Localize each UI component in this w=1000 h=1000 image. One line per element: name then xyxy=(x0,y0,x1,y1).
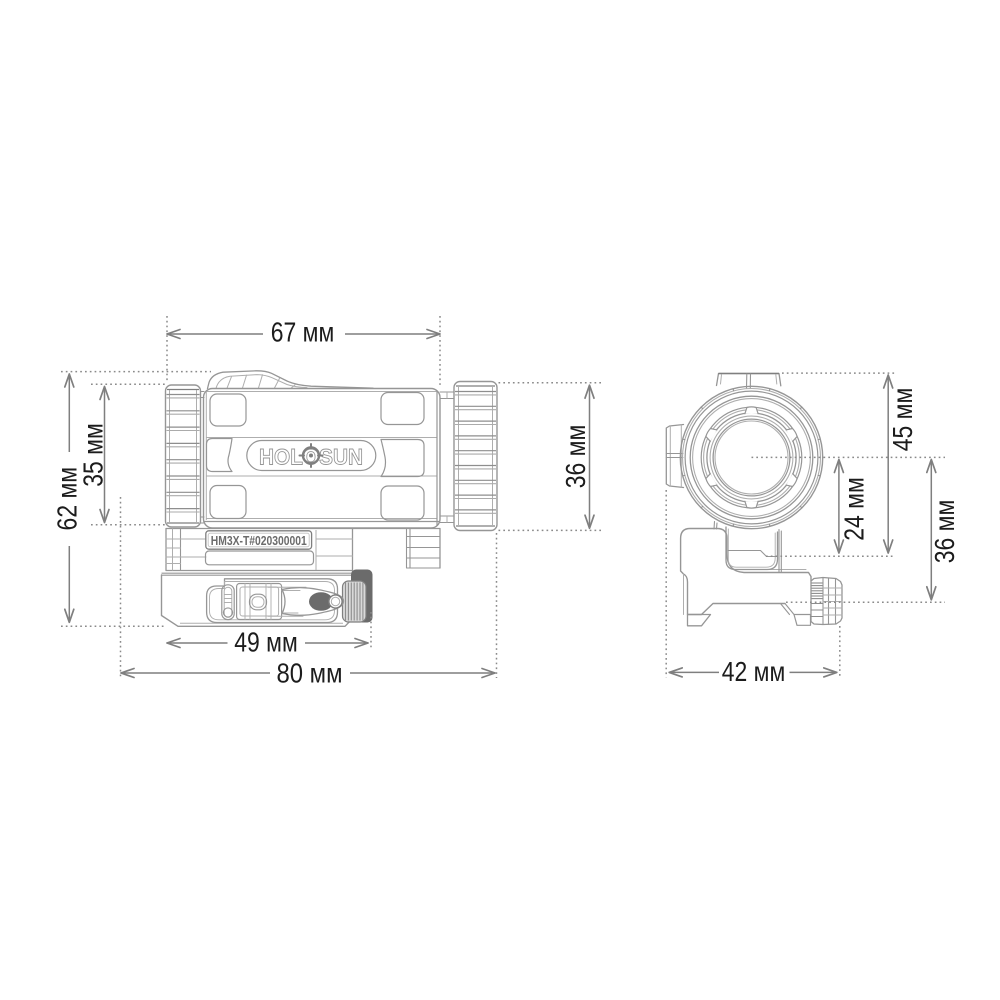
svg-text:80 мм: 80 мм xyxy=(277,658,343,689)
svg-text:67 мм: 67 мм xyxy=(271,317,335,348)
svg-text:HM3X-T#020300001: HM3X-T#020300001 xyxy=(211,534,307,548)
svg-text:36 мм: 36 мм xyxy=(560,425,591,489)
svg-text:35 мм: 35 мм xyxy=(78,423,109,487)
svg-text:24 мм: 24 мм xyxy=(839,477,870,541)
svg-text:45 мм: 45 мм xyxy=(887,388,918,452)
svg-text:42 мм: 42 мм xyxy=(722,656,786,687)
svg-text:49 мм: 49 мм xyxy=(234,627,298,658)
svg-text:36 мм: 36 мм xyxy=(929,500,960,564)
